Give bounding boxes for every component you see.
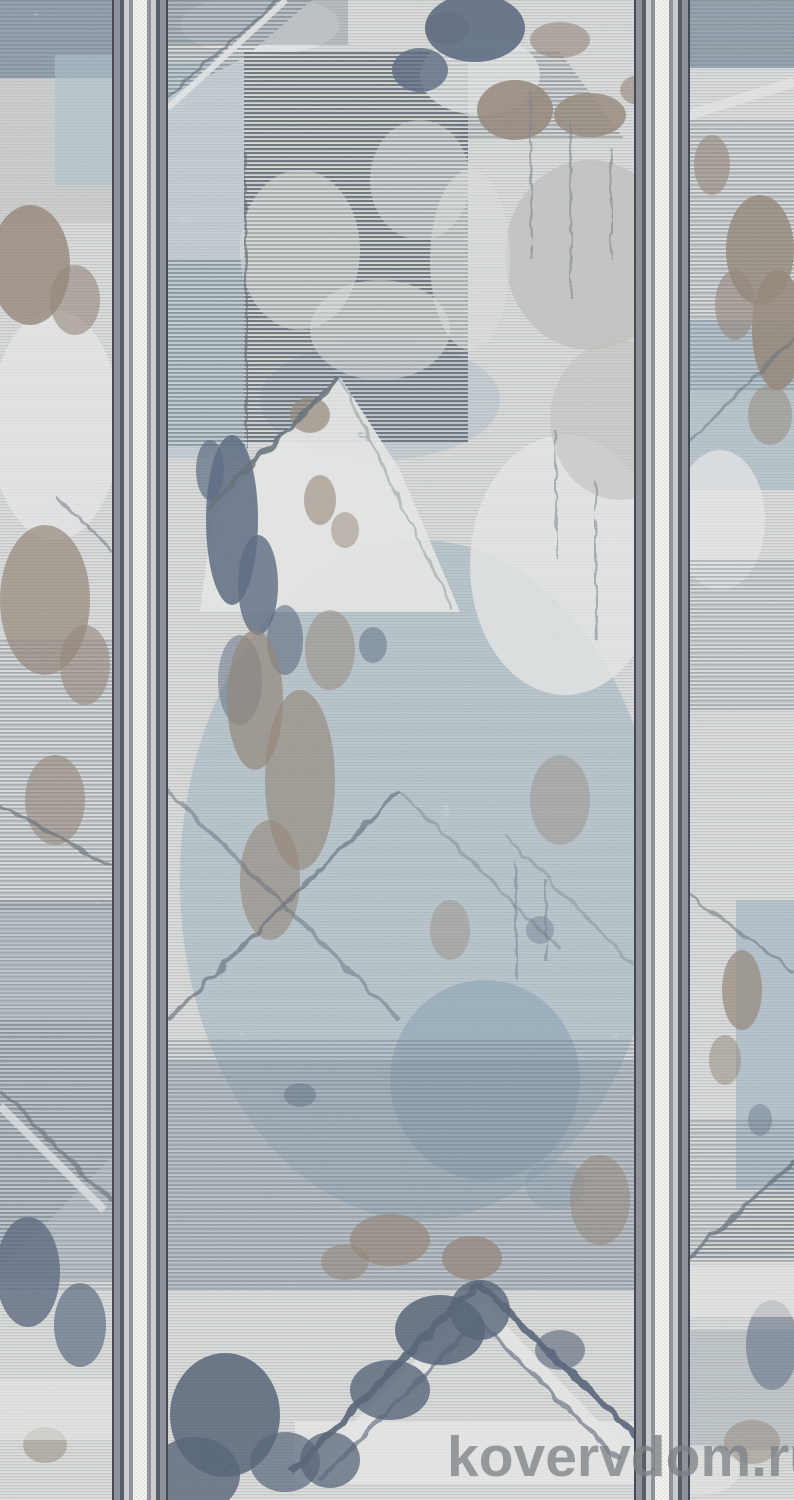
border-stripe-left bbox=[112, 0, 168, 1500]
carpet-photo: kovervdom.ru bbox=[0, 0, 794, 1500]
carpet-art-canvas bbox=[0, 0, 794, 1500]
border-stripe-right bbox=[634, 0, 690, 1500]
